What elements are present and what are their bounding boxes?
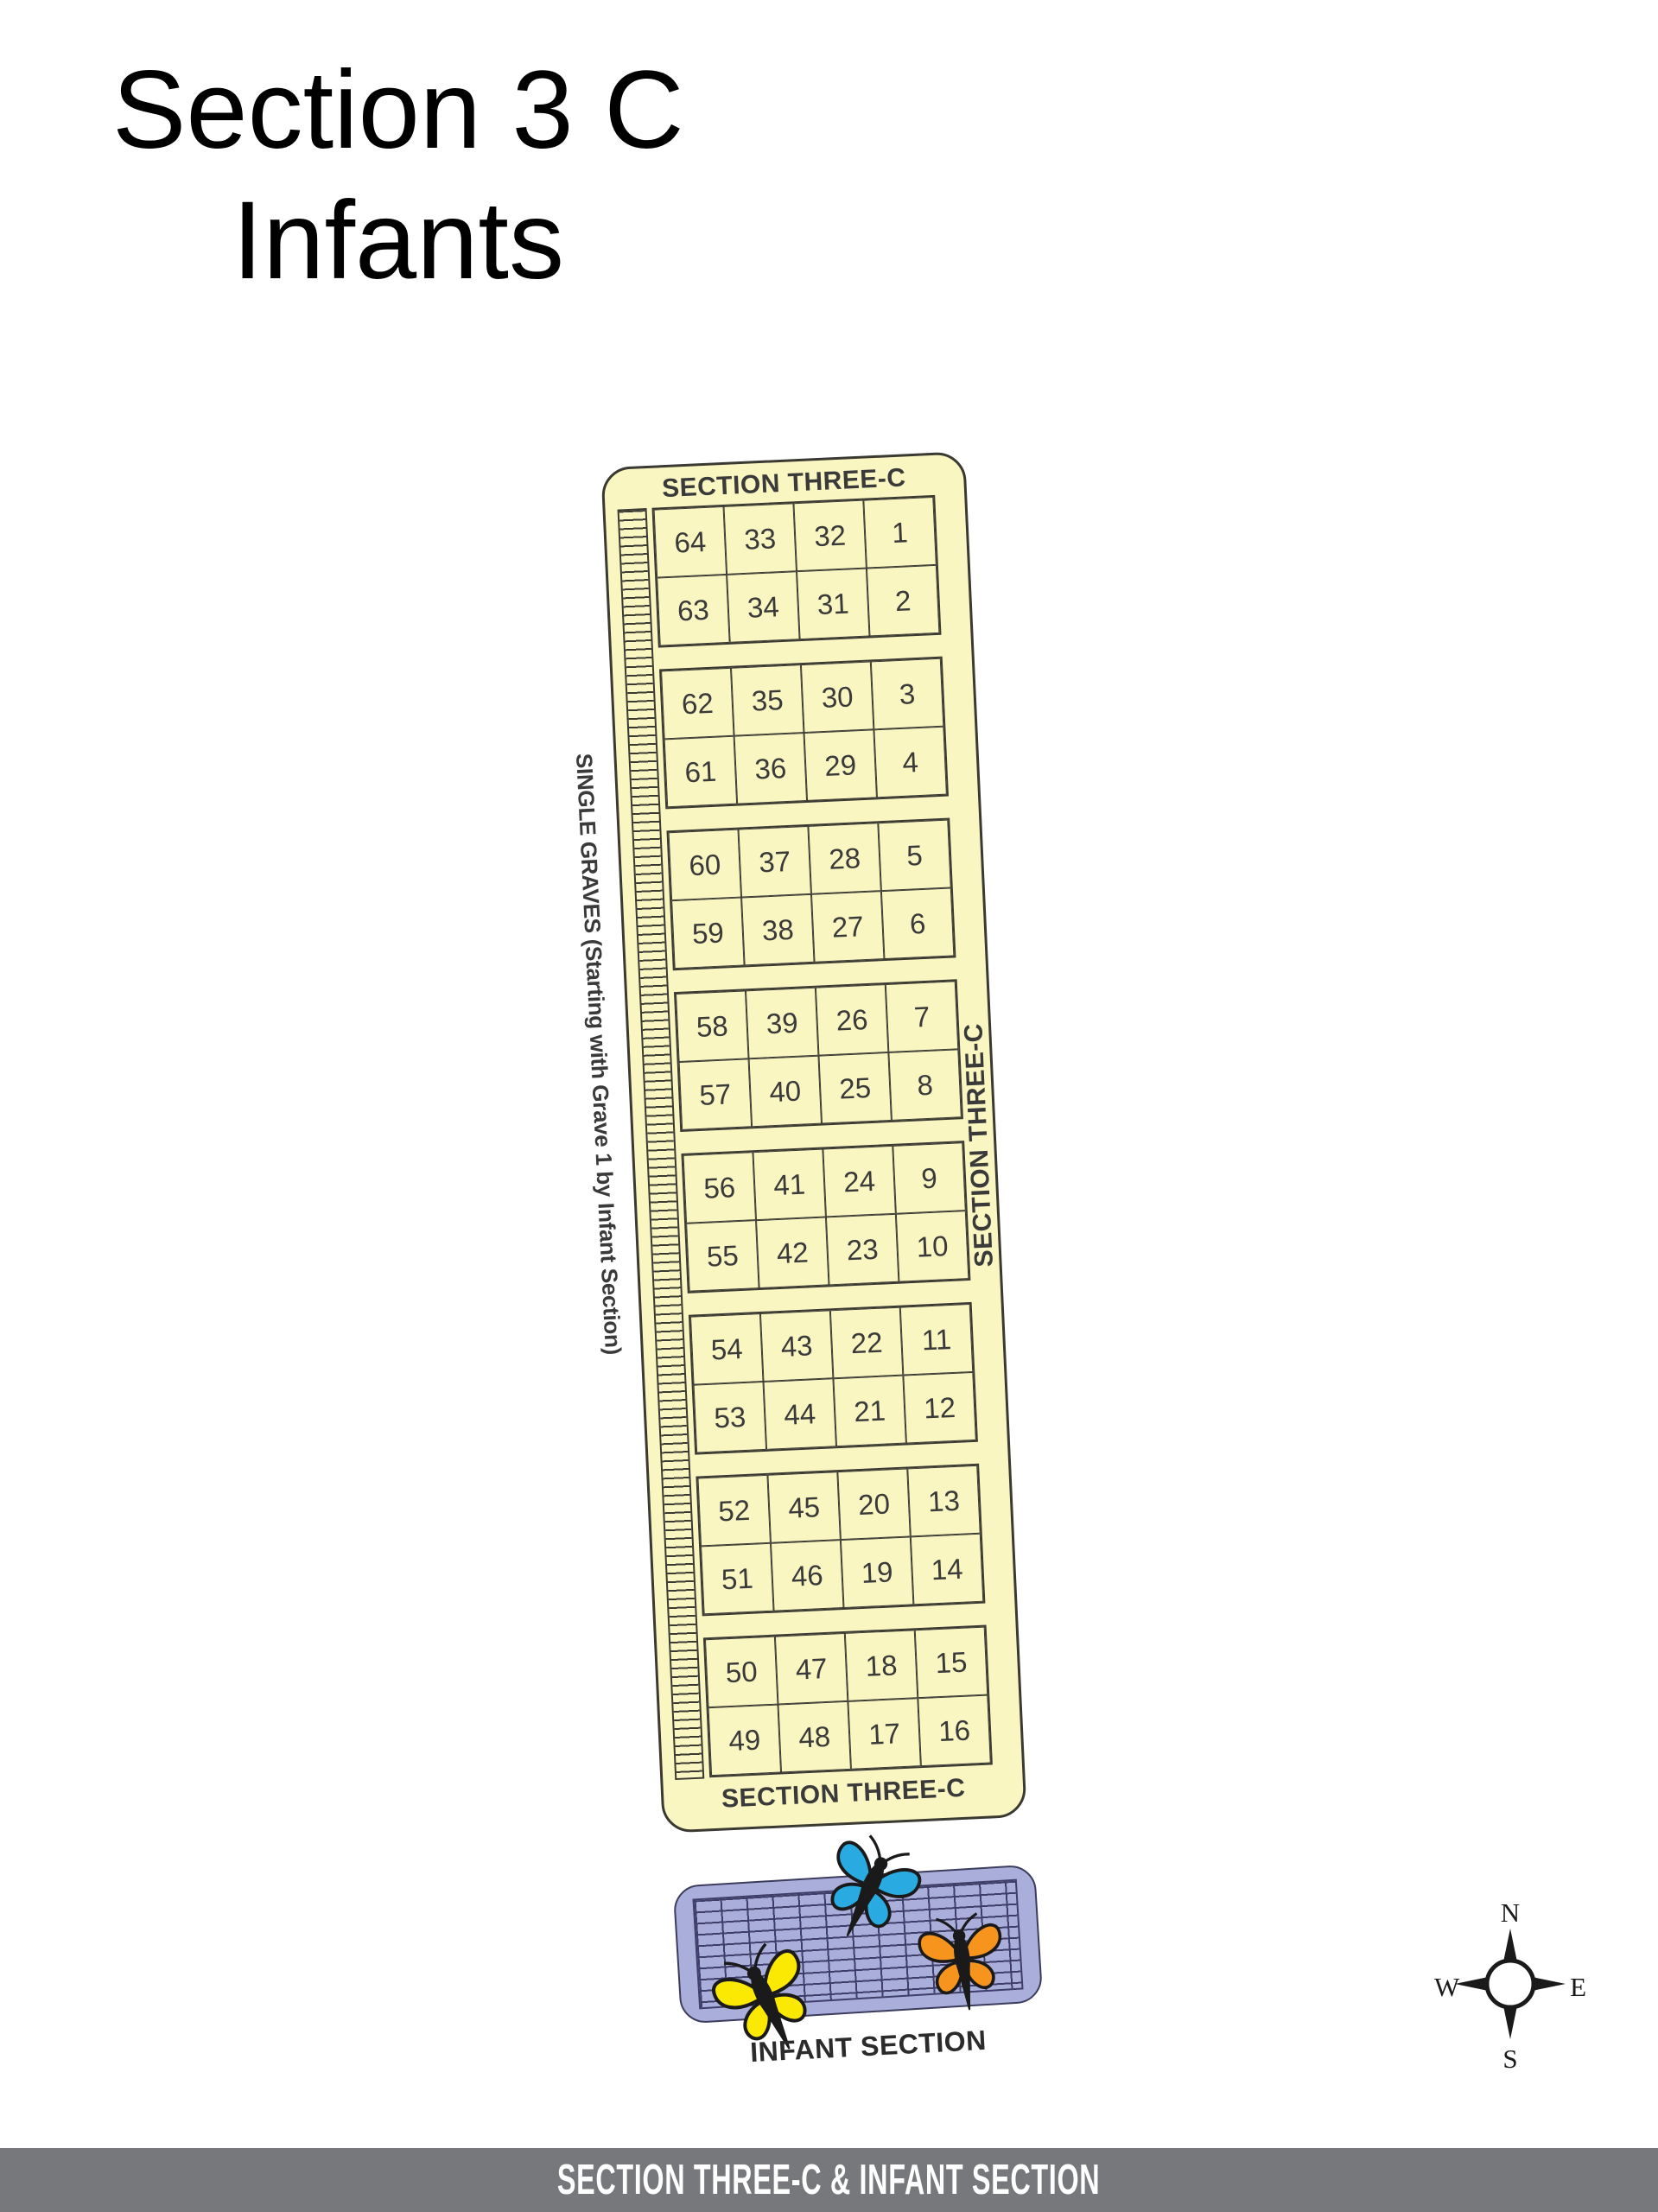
grave-cell-44: 44 <box>764 1378 837 1450</box>
grave-cell-6: 6 <box>881 887 955 959</box>
grave-grid: 6433321633431262353036136294603728559382… <box>651 495 994 1799</box>
grave-cell-42: 42 <box>756 1217 829 1288</box>
footer-title: SECTION THREE-C & INFANT SECTION <box>557 2156 1100 2204</box>
grave-block: 5245201351461914 <box>696 1464 985 1617</box>
grave-cell-30: 30 <box>801 661 874 733</box>
grave-cell-50: 50 <box>705 1637 778 1708</box>
grave-cell-8: 8 <box>888 1049 962 1121</box>
grave-cell-5: 5 <box>878 820 951 892</box>
grave-block: 5443221153442112 <box>689 1302 978 1455</box>
grave-cell-12: 12 <box>903 1372 976 1444</box>
grave-cell-28: 28 <box>808 823 881 894</box>
title-line-2: Infants <box>112 175 684 306</box>
grave-cell-29: 29 <box>804 729 877 801</box>
grave-cell-41: 41 <box>753 1149 826 1221</box>
grave-block: 58392675740258 <box>674 979 963 1132</box>
compass-rose: N S W E <box>1432 1897 1588 2075</box>
grave-cell-39: 39 <box>746 988 819 1059</box>
grave-cell-18: 18 <box>845 1630 918 1701</box>
grave-cell-34: 34 <box>727 571 800 643</box>
grave-cell-48: 48 <box>778 1701 851 1773</box>
grave-cell-37: 37 <box>738 826 811 898</box>
grave-cell-64: 64 <box>654 506 727 578</box>
grave-cell-45: 45 <box>767 1471 841 1543</box>
grave-cell-27: 27 <box>811 891 885 963</box>
cemetery-map-page: Section 3 C Infants SINGLE GRAVES (Start… <box>0 0 1658 2212</box>
compass-star-icon <box>1450 1923 1571 2044</box>
grave-cell-26: 26 <box>816 984 889 1056</box>
grave-cell-47: 47 <box>775 1633 848 1705</box>
grave-cell-17: 17 <box>848 1698 921 1770</box>
grave-cell-7: 7 <box>886 981 959 1052</box>
grave-cell-19: 19 <box>841 1536 914 1608</box>
page-title: Section 3 C Infants <box>112 45 684 306</box>
grave-cell-11: 11 <box>900 1304 974 1376</box>
grave-cell-21: 21 <box>833 1376 906 1447</box>
grave-cell-1: 1 <box>863 497 937 569</box>
grave-cell-16: 16 <box>918 1695 991 1767</box>
grave-cell-54: 54 <box>690 1313 764 1385</box>
grave-cell-62: 62 <box>661 668 734 740</box>
grave-cell-38: 38 <box>741 894 815 966</box>
grave-block: 60372855938276 <box>666 817 956 970</box>
section-three-c-panel: SECTION THREE-C 643332163343126235303613… <box>600 451 1026 1834</box>
grave-cell-20: 20 <box>837 1468 911 1540</box>
grave-cell-52: 52 <box>697 1475 771 1547</box>
grave-cell-24: 24 <box>823 1146 896 1217</box>
footer-bar: SECTION THREE-C & INFANT SECTION <box>0 2148 1658 2212</box>
grave-cell-46: 46 <box>771 1540 844 1611</box>
grave-cell-55: 55 <box>686 1220 759 1292</box>
grave-block: 564124955422310 <box>681 1141 970 1294</box>
grave-cell-43: 43 <box>760 1310 834 1382</box>
grave-cell-56: 56 <box>683 1152 757 1224</box>
panel-right-label: SECTION THREE-C <box>959 1022 1000 1268</box>
grave-cell-58: 58 <box>676 990 749 1062</box>
grave-cell-4: 4 <box>873 727 947 798</box>
grave-cell-57: 57 <box>679 1058 753 1130</box>
grave-cell-40: 40 <box>749 1056 823 1128</box>
compass-south-label: S <box>1432 2044 1588 2075</box>
grave-cell-13: 13 <box>907 1465 981 1537</box>
grave-cell-31: 31 <box>797 569 870 640</box>
grave-cell-9: 9 <box>893 1142 966 1214</box>
grave-cell-63: 63 <box>657 575 730 646</box>
grave-cell-36: 36 <box>734 733 808 804</box>
grave-cell-49: 49 <box>708 1705 782 1777</box>
grave-cell-10: 10 <box>896 1211 969 1282</box>
grave-cell-3: 3 <box>871 658 944 730</box>
grave-cell-32: 32 <box>793 500 867 572</box>
grave-cell-35: 35 <box>731 664 804 736</box>
title-line-1: Section 3 C <box>112 45 684 175</box>
butterfly-orange-icon <box>907 1900 1018 2019</box>
grave-cell-15: 15 <box>915 1627 988 1699</box>
grave-cell-2: 2 <box>867 565 940 637</box>
grave-cell-51: 51 <box>701 1543 774 1615</box>
compass-east-label: E <box>1570 1972 1586 2003</box>
grave-block: 62353036136294 <box>659 657 949 810</box>
grave-cell-25: 25 <box>818 1052 892 1124</box>
grave-cell-61: 61 <box>664 736 738 808</box>
grave-cell-53: 53 <box>694 1382 767 1453</box>
grave-cell-22: 22 <box>830 1307 904 1379</box>
grave-block: 5047181549481716 <box>703 1625 993 1778</box>
grave-block: 64333216334312 <box>651 495 941 648</box>
grave-cell-14: 14 <box>911 1534 984 1605</box>
grave-cell-23: 23 <box>826 1214 899 1286</box>
grave-cell-33: 33 <box>724 503 797 575</box>
grave-cell-59: 59 <box>671 898 745 969</box>
grave-cell-60: 60 <box>669 829 742 901</box>
